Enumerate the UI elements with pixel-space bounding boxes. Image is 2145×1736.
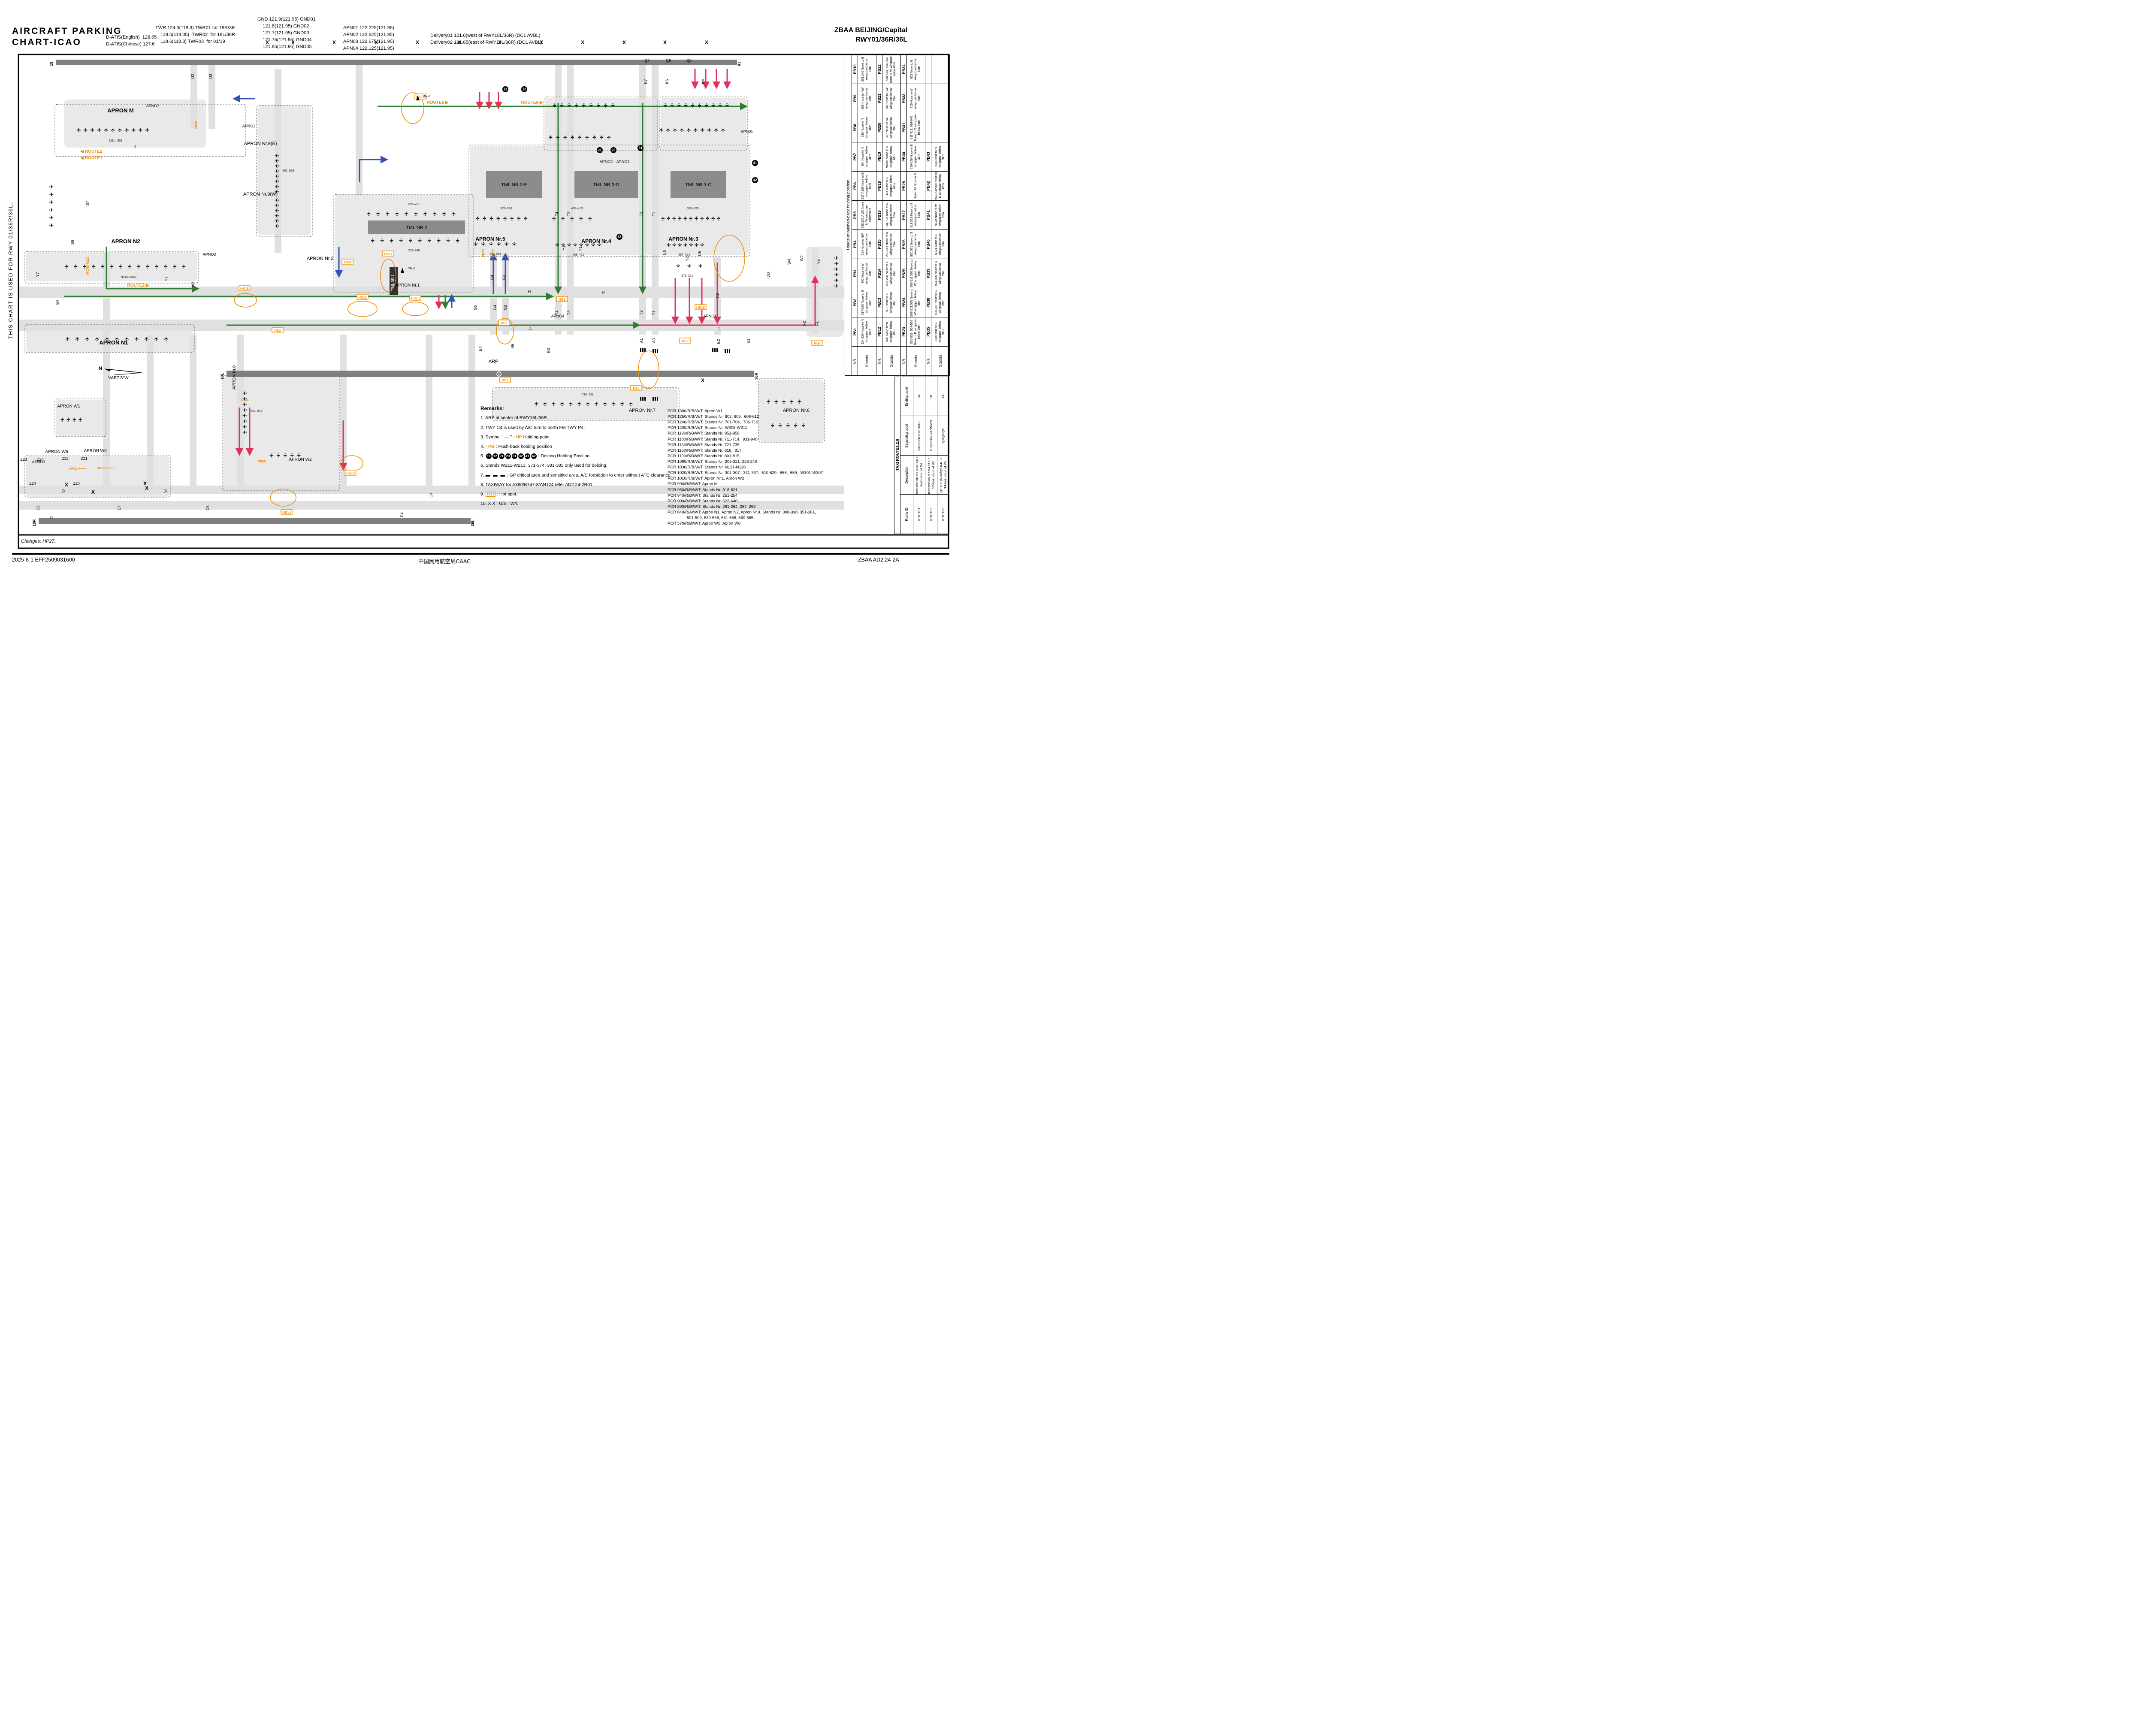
gp-critical-mark [725, 349, 726, 353]
aircraft-stand-icon: ✈ [697, 264, 704, 269]
aircraft-stand-icon: ✈ [413, 211, 419, 216]
deicing-position-number: 12 [523, 88, 526, 91]
aircraft-stand-icon: ✈ [610, 103, 616, 108]
taxiway-label: U5 [698, 251, 702, 256]
taxiway-label: G [529, 327, 532, 331]
runway-designator: 18L [220, 373, 224, 380]
pb-number-cell: PB24 [901, 288, 907, 317]
gnd-frequencies: GND 121.9(121.95) GND01 121.8(121.95) GN… [257, 16, 316, 51]
pb-number-cell: PB5 [852, 201, 858, 230]
pb-number-cell: PB3 [852, 259, 858, 288]
us-twy-x-mark: X [622, 39, 626, 45]
aircraft-stand-icon: ✈ [569, 135, 576, 139]
aircraft-stand-icon: ✈ [127, 264, 133, 269]
effective-date: 2025-8-1 EFF2509031600 [12, 557, 75, 563]
pcr-line: PCR 990/R/B/W/T: Apron M [668, 481, 823, 487]
aircraft-stand-icon: ✈ [686, 127, 692, 132]
hotspot-label: HS11 [358, 296, 367, 299]
us-twy-x-mark: X [701, 377, 704, 383]
aircraft-stand-icon: ✈ [675, 264, 681, 269]
runway-designator: 36R [754, 372, 758, 380]
aircraft-stand-icon: ✈ [480, 242, 486, 247]
apron-area [335, 195, 472, 292]
taxiway-label: U2 [190, 74, 195, 79]
gp-critical-mark [653, 397, 654, 401]
pb-stands-cell: W210 Nose to N wingspan below 65m [882, 142, 901, 172]
aircraft-stand-icon: ✈ [242, 423, 247, 430]
us-twy-x-mark: X [145, 485, 148, 491]
us-twy-x-mark: X [705, 39, 708, 45]
pb-number-cell: PB4 [852, 230, 858, 259]
pb-stands-cell: 114 Nose to N wingspan below 48m [882, 172, 901, 201]
apron-label: APNO4 [704, 314, 717, 318]
pushback-point-label: PB35 [258, 459, 266, 463]
aircraft-stand-icon: ✈ [172, 264, 178, 269]
side-note: THIS CHART IS USED FOR RWY 01/36R/36L. [8, 202, 14, 339]
taxi-route-header: Ending point [900, 377, 913, 417]
pcr-line: PCR 1100/R/B/W/T: Stands Nr. 801-815 [668, 453, 823, 459]
hotspot-label: HS13 [346, 471, 355, 475]
hotspot-label: HS16 [696, 306, 705, 310]
aircraft-stand-icon: ✈ [124, 127, 130, 132]
pcr-line: PCR 890/R/B/W/T: Stands Nr. 261-264, 267… [668, 504, 823, 510]
route-label: ROUTE2 ▶ [127, 283, 149, 288]
aircraft-stand-icon: ✈ [710, 103, 716, 108]
remark-item: 1. ARP at center of RWY18L/36R [480, 415, 674, 421]
taxi-route-cell: Intersection of S5&Z3-S7 -Y7-hold short … [925, 456, 937, 495]
aircraft-stand-icon: ✈ [422, 211, 429, 216]
stand-range-label: 357–351 [678, 254, 690, 257]
pb-stands-cell: 530-533, 554-556 Nose to E wingspan belo… [907, 317, 925, 347]
taxiway-label: T4 [555, 212, 559, 217]
aircraft-stand-icon: ✈ [454, 239, 461, 243]
aircraft-stand-icon: ✈ [669, 103, 675, 108]
taxiway-label: S7 [85, 201, 90, 205]
taxiway-connector [147, 335, 154, 486]
taxi-route-cell: ROUTE1 [913, 495, 925, 534]
magnetic-variation-label: VAR7.5°W [108, 376, 129, 380]
hotspot-ellipse [402, 302, 428, 316]
hotspot-ellipse [348, 301, 377, 317]
aircraft-stand-icon: ✈ [580, 103, 587, 108]
gp-critical-mark [714, 348, 716, 352]
aircraft-stand-icon: ✈ [426, 239, 432, 243]
aircraft-stand-icon: ✈ [153, 336, 160, 341]
gp-critical-mark [657, 397, 658, 401]
aircraft-stand-icon: ✈ [384, 211, 391, 216]
aircraft-stand-icon: ✈ [588, 103, 594, 108]
aircraft-stand-icon: ✈ [82, 127, 89, 132]
remark-item: 10. X X : U/S TWY. [480, 501, 674, 507]
aircraft-stand-icon: ✈ [716, 216, 722, 220]
pb-stands-cell: 508-511,565 Nose to W wingspan below 80m [907, 259, 925, 288]
pb-number-cell: PB20 [876, 113, 882, 142]
aircraft-stand-icon: ✈ [275, 453, 281, 458]
aircraft-stand-icon: ✈ [89, 127, 96, 132]
taxiway-label: E5 [511, 344, 515, 348]
aircraft-stand-icon: ✈ [432, 211, 438, 216]
apron-label: APNO2 [242, 124, 256, 128]
taxiway-connector [190, 335, 196, 486]
taxiway-label: E3 [547, 348, 551, 353]
aircraft-stand-icon: ✈ [181, 264, 187, 269]
stand-range-label: 735–721 [582, 393, 593, 396]
apron-label: APRON N2 [111, 238, 140, 245]
hotspot-label: HS4 [633, 387, 640, 391]
pb-number-cell: PB43 [925, 142, 931, 172]
compass-north-label: N [99, 366, 102, 371]
aircraft-stand-icon: ✈ [602, 103, 609, 108]
nr-header: NR. [901, 347, 907, 376]
stands-header: Stands [931, 347, 950, 376]
aircraft-stand-icon: ✈ [555, 135, 561, 139]
pb-number-cell: PB1 [852, 317, 858, 347]
pushback-table-title: Usage of pushed-back holding position. [845, 55, 852, 376]
aircraft-stand-icon: ✈ [606, 135, 612, 139]
pb-stands-cell: 518,519 Nose to S wingspan below 65m [907, 201, 925, 230]
stand-range-label: 223–240 [408, 249, 420, 252]
aircraft-stand-icon: ✈ [369, 239, 376, 243]
pcr-line: PCR 570/R/B/W/T: Apron W5, Apron W6 [668, 521, 823, 526]
taxi-route-cell: Intersection of H&H1-S6-F -hold short of… [913, 456, 925, 495]
stand-range-label: 408–413 [571, 207, 583, 210]
hotspot-label: HS3 [344, 260, 351, 264]
aircraft-stand-icon: ✈ [502, 216, 508, 220]
pb-number-cell: PB34 [901, 55, 907, 84]
stand-range-label: 458–451 [572, 254, 584, 257]
pb-number-cell: PB22 [876, 55, 882, 84]
apron-label: APRON W2 [289, 457, 312, 462]
holding-point-label: HP18 [69, 467, 78, 471]
chart-page: 190118L36R18R36LTML NR.3-ETML NR.3-DTML … [0, 0, 955, 579]
pcr-line: 501-509, 530-536, 551-556, 560-565 [668, 515, 823, 521]
pb-number-cell [925, 113, 931, 142]
deicing-legend-circle: 12 [492, 453, 498, 459]
nr-header: NR. [876, 347, 882, 376]
aircraft-stand-icon: ✈ [566, 243, 572, 248]
aircraft-stand-icon: ✈ [242, 418, 247, 424]
aircraft-stand-icon: ✈ [699, 127, 706, 132]
taxiway-label: Z21 [81, 456, 88, 461]
taxi-route-cell: Intersection of S5&Z3 [925, 416, 937, 456]
aircraft-stand-icon: ✈ [137, 127, 144, 132]
aircraft-stand-icon: ✈ [692, 127, 699, 132]
apron-area [64, 100, 206, 148]
taxiway-label: T1 [652, 311, 656, 315]
aircraft-stand-icon: ✈ [65, 417, 72, 422]
apron-label: APRON Nr.9(E) [244, 141, 277, 146]
remark-item: 6. Stands W211-W213, 371-374, 381-383 on… [480, 462, 674, 469]
taxi-route-header: Route ID [900, 495, 913, 534]
deicing-position-number: 32 [618, 235, 622, 239]
deicing-position-number: 42 [753, 178, 757, 182]
stand-range-label: N213–N201 [121, 276, 136, 279]
taxiway-label: T2 [639, 311, 643, 315]
gp-critical-mark [655, 397, 656, 401]
apron-label: APN01 [741, 130, 753, 134]
taxiway-label: T3 [567, 311, 571, 315]
aircraft-stand-icon: ✈ [274, 223, 279, 229]
delivery-frequencies: Delivery01 121.6(west of RWY18L/36R) (DC… [430, 33, 542, 46]
taxiway-label: C4 [429, 492, 433, 498]
taxiway-label: Y4 [817, 259, 821, 264]
stand-range-label: 951–958 [282, 169, 294, 172]
deicing-position-number: 11 [504, 88, 508, 91]
aircraft-stand-icon: ✈ [671, 243, 677, 248]
aircraft-stand-icon: ✈ [163, 336, 169, 341]
aircraft-stand-icon: ✈ [696, 103, 703, 108]
hotspot-label: HS17 [384, 252, 393, 256]
remark-item: 4. - PB : Push-back holding position [480, 444, 674, 450]
aircraft-stand-icon: ✈ [379, 239, 385, 243]
us-twy-x-mark: X [91, 489, 95, 495]
gp-critical-mark [712, 348, 713, 352]
terminal-label: TML NR.1 [391, 274, 395, 290]
aircraft-stand-icon: ✈ [76, 127, 82, 132]
taxiway-label: Q6 [666, 58, 671, 63]
pb-stands-cell: 638 Nose to N wingspan below 36m [931, 142, 950, 172]
aircraft-stand-icon: ✈ [49, 214, 54, 221]
taxiway-label: U3 [208, 74, 213, 79]
aircraft-stand-icon: ✈ [435, 239, 442, 243]
apron-label: APNO3 [203, 252, 216, 257]
pcr-line: PCR 1300/R/B/W/T: Apron W1 [668, 408, 823, 414]
pb-number-cell: PB27 [901, 201, 907, 230]
aircraft-stand-icon: ✈ [665, 127, 671, 132]
taxiway-label: C [50, 516, 53, 520]
aircraft-stand-icon: ✈ [96, 127, 103, 132]
aircraft-stand-icon: ✈ [689, 103, 696, 108]
aircraft-stand-icon: ✈ [554, 243, 560, 248]
pb-stands-cell: N121 Nose to E wingspan below 36m [931, 230, 950, 259]
aircraft-stand-icon: ✈ [679, 127, 685, 132]
taxiway-label: T1 [652, 212, 656, 217]
pb-number-cell: PB21 [876, 84, 882, 113]
aircraft-stand-icon: ✈ [445, 239, 451, 243]
runway-designator: 19 [49, 62, 54, 66]
apron-label: APNO4 [551, 314, 565, 318]
pushback-point-label: PB33 [242, 398, 250, 402]
aircraft-stand-icon: ✈ [144, 127, 151, 132]
gp-critical-mark [729, 349, 730, 353]
pb-number-cell: PB28 [901, 172, 907, 201]
pb-number-cell: PB12 [876, 317, 882, 347]
holding-point-label: HP17 [97, 466, 105, 470]
taxi-route-cell: ROUTE2 [925, 495, 937, 534]
pb-stands-cell: 815 Nose to W wingspan below 40m [907, 84, 925, 113]
pb-number-cell: PB13 [876, 288, 882, 317]
aircraft-stand-icon: ✈ [789, 399, 795, 404]
taxiway-label: W4 [787, 259, 792, 265]
taxiway-label: T3 [567, 212, 571, 217]
taxiway-connector [468, 335, 475, 486]
pcr-line: PCR 950/R/B/W/T: Stands Nr. 818-821 [668, 487, 823, 493]
tower-label: TWR [422, 94, 430, 98]
taxi-route-cell: S4 [913, 377, 925, 417]
deicing-position-number: 21 [598, 148, 602, 152]
changes-note: Changes: HP27. [18, 535, 951, 548]
aircraft-stand-icon: ✈ [598, 135, 605, 139]
remark-item: 9. HS1 : Hot spot. [480, 491, 674, 498]
pushback-point-label: PB28 [194, 121, 198, 130]
hotspot-label: HS7 [502, 378, 508, 382]
taxiway-label: G4 [493, 305, 497, 310]
taxiway-label: Y7 [164, 276, 169, 281]
aircraft-stand-icon: ✈ [145, 264, 151, 269]
apron-label: APRON Nr.9(W) [243, 192, 278, 197]
aircraft-stand-icon: ✈ [677, 243, 683, 248]
pb-number-cell: PB7 [852, 142, 858, 172]
taxiway-label: E2 [716, 339, 721, 344]
chart-code: ZBAA AD2.24-2A [858, 557, 899, 563]
deicing-legend-circle: 41 [525, 453, 530, 459]
atis-frequencies: D-ATIS(English) 128.65 D-ATIS(Chinese) 1… [106, 34, 157, 48]
pb-stands-cell: 238 Nose to N wingspan below 36m [858, 113, 876, 142]
runway [56, 60, 737, 65]
pb-stands-cell: 821 Nose to E wingspan below 36m [907, 55, 925, 84]
aircraft-stand-icon: ✈ [100, 264, 106, 269]
pb-stands-cell: 520,521 Nose to S wingspan below 65m [907, 230, 925, 259]
authority: 中国民用航空局CAAC [418, 557, 471, 565]
taxi-route-table: TAXI ROUTE1,2,6Route IDDescriptionBeginn… [894, 377, 949, 534]
pushback-table: Usage of pushed-back holding position.NR… [845, 54, 950, 376]
gp-critical-mark [644, 397, 646, 401]
taxiway-label: Z23 [20, 457, 27, 462]
aircraft-stand-icon: ✈ [472, 242, 479, 247]
taxiway-label: M1 [191, 281, 195, 287]
taxi-route-cell: Intersection of H&H1 [913, 416, 925, 456]
stand-range-label: 319–329 [687, 207, 698, 210]
remark-item: 8. TAXIWAY for A380/B747-8/AN124 refer A… [480, 482, 674, 488]
aircraft-stand-icon: ✈ [417, 239, 423, 243]
aircraft-stand-icon: ✈ [130, 127, 137, 132]
stands-header: Stands [882, 347, 901, 376]
taxiway-label: K4 [701, 79, 705, 84]
taxiway-label: T2 [639, 212, 643, 217]
pb-stands-cell: 508-511,565 Nose to W wingspan below 80m [907, 288, 925, 317]
aircraft-stand-icon: ✈ [577, 135, 583, 139]
taxiway-label: F1 [815, 321, 819, 326]
aircraft-stand-icon: ✈ [103, 127, 109, 132]
chart-title: AIRCRAFT PARKING CHART-ICAO [12, 26, 122, 48]
aircraft-stand-icon: ✈ [562, 135, 568, 139]
us-twy-x-mark: X [332, 39, 336, 45]
airport-title: ZBAA BEIJING/Capital RWY01/36R/36L [826, 26, 907, 45]
us-twy-x-mark: X [663, 39, 667, 45]
aircraft-stand-icon: ✈ [398, 239, 404, 243]
aircraft-stand-icon: ✈ [509, 216, 515, 220]
aircraft-stand-icon: ✈ [703, 103, 710, 108]
aircraft-stand-icon: ✈ [662, 103, 668, 108]
aircraft-stand-icon: ✈ [118, 264, 124, 269]
taxiway-label: Y1 [578, 246, 583, 251]
aircraft-stand-icon: ✈ [686, 264, 692, 269]
deicing-legend-circle: 21 [499, 453, 505, 459]
taxiway-label: Q5 [686, 58, 692, 63]
pb-stands-cell: 337 Nose to SE wingspan below 65m [882, 113, 901, 142]
aircraft-stand-icon: ✈ [676, 103, 682, 108]
taxi-route-title: TAXI ROUTE1,2,6 [894, 377, 900, 534]
pb-number-cell: PB40 [925, 230, 931, 259]
pb-stands-cell: 236,237,A106 Nose to W wingspan below 65… [858, 201, 876, 230]
apron-label: APRON Nr.4 [581, 238, 611, 244]
apron-label: APNO3 [32, 460, 45, 464]
aircraft-stand-icon: ✈ [163, 264, 169, 269]
pb-stands-cell: 205,206 Nose to E wingspan below 36m [882, 259, 901, 288]
route-label: ROUTE2 [85, 257, 90, 275]
aircraft-stand-icon: ✈ [242, 401, 247, 408]
aircraft-stand-icon: ✈ [713, 127, 719, 132]
aircraft-stand-icon: ✈ [665, 243, 672, 248]
apron-label: APRON Nr.1 [396, 283, 420, 288]
aircraft-stand-icon: ✈ [481, 216, 488, 220]
pushback-point-label: PB22 [491, 249, 495, 257]
taxiway-label: D2 [164, 489, 168, 494]
gp-critical-mark [716, 348, 718, 352]
aircraft-stand-icon: ✈ [595, 103, 601, 108]
pb-number-cell: PB19 [876, 142, 882, 172]
taxi-route-cell: H2 [925, 377, 937, 417]
aircraft-stand-icon: ✈ [441, 211, 447, 216]
pb-number-cell: PB35 [925, 317, 931, 347]
aircraft-stand-icon: ✈ [796, 399, 803, 404]
nr-header: NR. [852, 347, 858, 376]
pb-stands-cell: 103 Nose to NW wingspan below 36m [858, 84, 876, 113]
pcr-line: PCR 900/R/B/W/T: Stands Nr. 622-640 [668, 498, 823, 504]
aircraft-stand-icon: ✈ [73, 264, 79, 269]
taxiway-label: G2 [716, 293, 720, 298]
aircraft-stand-icon: ✈ [49, 207, 54, 213]
deicing-legend-circle: 11 [486, 453, 492, 459]
pb-stands-cell: 934,935 Nose to S wingspan below 65m [931, 259, 950, 288]
aircraft-stand-icon: ✈ [77, 417, 84, 422]
aircraft-stand-icon: ✈ [91, 264, 97, 269]
terminal-label: TML NR.3-D [593, 182, 619, 187]
apron-label: APRON W1 [57, 404, 80, 409]
pb-number-cell: PB8 [852, 113, 858, 142]
aircraft-stand-icon: ✈ [282, 453, 288, 458]
aircraft-stand-icon: ✈ [71, 417, 78, 422]
pb-number-cell: PB42 [925, 172, 931, 201]
pb-stands-cell: 104 Nose to N wingspan below 36m [858, 142, 876, 172]
aircraft-stand-icon: ✈ [584, 135, 590, 139]
taxi-route-header: Beginning point [900, 416, 913, 456]
aircraft-stand-icon: ✈ [516, 216, 522, 220]
arp-label: ARP [489, 359, 498, 364]
aircraft-stand-icon: ✈ [682, 243, 689, 248]
deicing-position-number: 31 [639, 146, 643, 150]
aircraft-stand-icon: ✈ [559, 103, 565, 108]
hotspot-label: HS15 [240, 287, 249, 291]
taxi-route-cell: Y4 [937, 377, 949, 417]
remark-item: 2. TWY C4 is used by A/C turn to north F… [480, 425, 674, 431]
remarks-title: Remarks: [480, 405, 674, 412]
twr-frequencies: TWR 124.3(118.3) TWR01 for 18R/36L 118.5… [155, 25, 237, 45]
aircraft-stand-icon: ✈ [572, 243, 578, 248]
taxiway-label: Y7 [36, 272, 40, 277]
pushback-point-label: PB23 [481, 249, 485, 257]
taxiway-label: Y1 [562, 245, 566, 250]
aircraft-stand-icon: ✈ [511, 242, 517, 247]
deicing-legend-circle: 42 [531, 453, 537, 459]
stands-header: Stands [858, 347, 876, 376]
nr-header: NR. [925, 347, 931, 376]
pb-number-cell: PB38 [925, 288, 931, 317]
taxi-route-cell: ROUTE6 [937, 495, 949, 534]
tower-label: TWR [407, 266, 415, 270]
taxiway-label: C7 [117, 505, 121, 510]
taxiway-connector [426, 335, 432, 486]
